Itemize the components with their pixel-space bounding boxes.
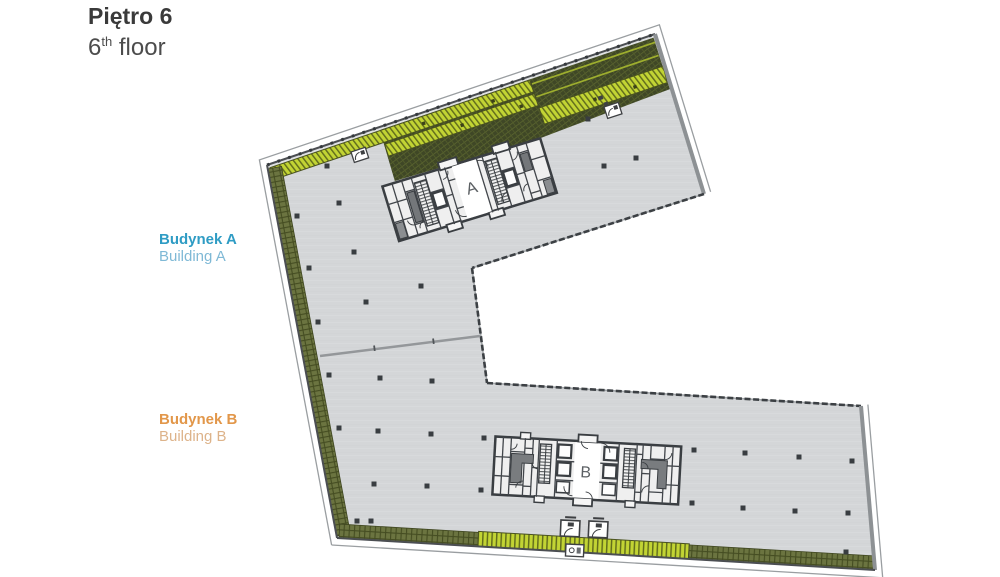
svg-text:B: B bbox=[580, 464, 592, 482]
